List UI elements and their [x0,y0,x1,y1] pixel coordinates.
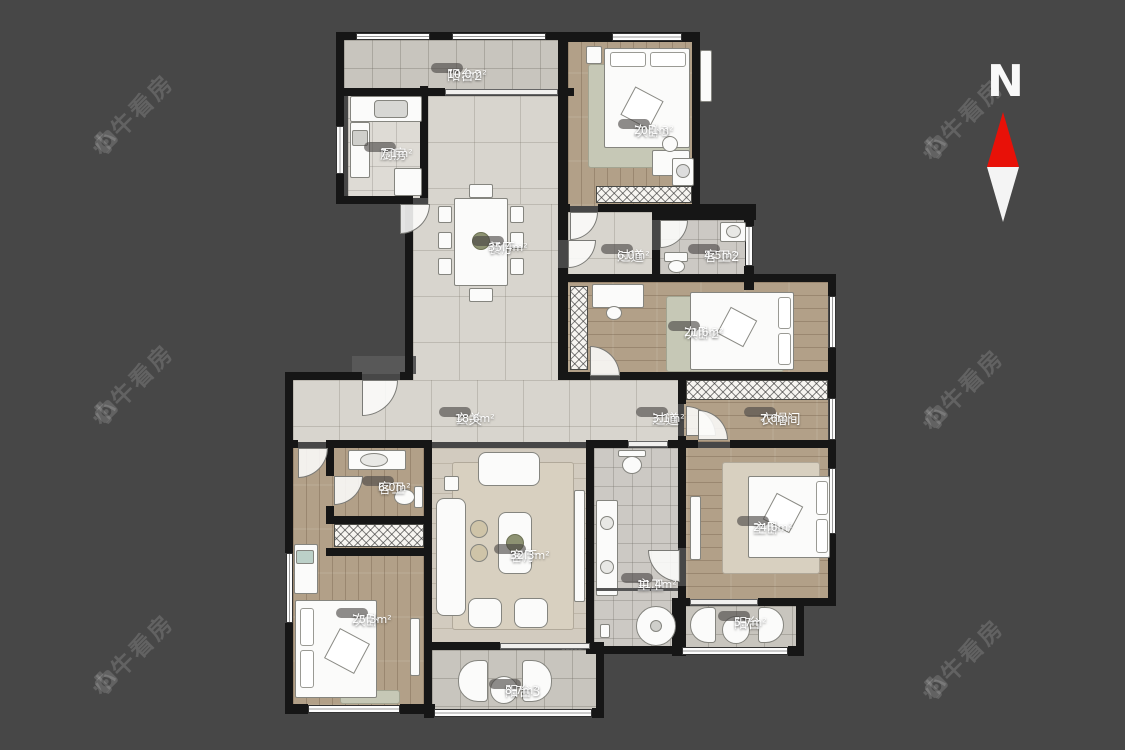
window [434,709,592,717]
compass: N [970,60,1040,230]
room-label-balcony1: 阳台5.7m² [718,611,750,621]
room-area: 6.0m² [378,481,411,495]
chair [469,184,493,198]
armchair [514,598,548,628]
room-area: 20.1m² [634,124,674,138]
sliding-door [500,643,590,649]
window [452,33,546,40]
chair [606,306,622,320]
sliding-door [628,441,668,447]
equipment-platform [700,50,712,102]
wall [285,372,362,380]
wall [562,372,590,380]
room-label-master-bed: 主卧24.6m² [737,516,769,526]
floorplan-canvas: 小牛看房 小牛看房 小牛看房 小牛看房 小牛看房 小牛看房 小牛看房 小牛看房 … [0,0,1125,750]
toilet [668,260,685,273]
toilet-tank [414,486,423,508]
room-area: 24.6m² [753,521,793,535]
wall [424,708,434,718]
wall [424,642,500,650]
pillow [300,608,314,646]
pouf [470,520,488,538]
room-label-bedroom: 次卧25.3m² [336,608,368,618]
wardrobe [334,524,424,547]
room-area: 3.1m² [652,412,685,426]
wall [678,440,686,548]
chair [469,288,493,302]
room-label-bedroom2: 次卧221.6m² [668,321,700,331]
room-label-bedroom3: 次卧320.1m² [618,119,650,129]
window [745,226,753,266]
room-label-kitchen: 厨房7.1m² [364,142,396,152]
wall [788,646,804,656]
pillow [650,52,686,67]
wall [424,440,432,716]
room-label-closet: 衣帽间7.6m² [744,407,776,417]
room-label-master-bath: 主卫11.4m² [621,573,653,583]
toilet [622,456,642,474]
wall [285,704,308,714]
balcony-chair [458,660,488,702]
watermark-text: 小牛看房 [913,609,1011,707]
wall [285,623,293,712]
sofa [436,498,466,616]
room-label-living: 客厅32.3m² [494,544,526,554]
wall [330,440,432,448]
ac-fan [676,164,690,178]
wall [326,516,432,524]
wall [678,376,686,404]
room-area: 32.3m² [510,549,550,563]
wall [586,440,594,654]
wall [652,204,756,220]
room-area: 18.6m² [455,412,495,426]
desk [592,284,644,308]
room-area: 7.6m² [760,412,793,426]
watermark-text: 小牛看房 [83,334,181,432]
wardrobe [596,186,692,203]
pillow [778,333,791,365]
basin [600,560,614,574]
room-area: 35.4m² [488,241,528,255]
watermark-text: 小牛看房 [83,604,181,702]
pillow [816,481,828,515]
wall [672,646,682,656]
nightstand [586,46,602,64]
wall [326,440,334,476]
chair [438,206,452,223]
wall [285,372,293,553]
wall [828,282,836,296]
window [286,553,293,623]
room-label-balcony3: 阳台38.7m² [489,679,521,689]
window [356,33,430,40]
fridge [394,168,422,196]
wall [562,204,570,212]
window [829,296,836,348]
picture-frame [296,550,314,564]
room-area: 10.0m² [447,68,487,82]
basin [360,453,388,467]
pillow [778,297,791,329]
room-label-corridor2: 过道3.1m² [636,407,668,417]
chair [510,206,524,223]
wall [586,646,686,654]
floor-dining-upper [428,96,558,206]
pillow [816,519,828,553]
north-arrow-icon [987,112,1019,167]
room-label-bath2: 客卫24.5m² [688,244,720,254]
pouf [470,544,488,562]
sliding-door [445,89,558,95]
wall [336,196,406,204]
armchair [468,598,502,628]
wall [652,212,660,220]
chair [438,258,452,275]
wall [558,268,568,380]
sliding-door [690,599,758,605]
wall [400,372,413,380]
window [682,647,788,655]
wall [562,274,836,282]
watermark-text: 小牛看房 [913,339,1011,437]
shower-drain [650,620,662,632]
room-label-dining: 餐厅35.4m² [472,236,504,246]
room-area: 6.0m² [617,249,650,263]
tv-cabinet [690,496,701,560]
room-area: 5.7m² [734,616,767,630]
room-label-corridor1: 过道6.0m² [601,244,633,254]
chair [510,258,524,275]
compass-n-label: N [987,56,1024,107]
vanity [596,500,618,596]
wall [285,440,298,448]
room-area: 25.3m² [352,613,392,627]
wardrobe [686,380,828,400]
room-area: 21.6m² [684,326,724,340]
basin [600,516,614,530]
window [612,33,682,41]
tv-console [574,490,585,602]
room-label-foyer: 玄关18.6m² [439,407,471,417]
sofa-loveseat [478,452,540,486]
room-area: 4.5m² [704,249,737,263]
window [336,126,344,174]
wall [730,440,836,448]
sink [374,100,408,118]
window [829,468,836,534]
wall [620,372,836,380]
pillow [300,650,314,688]
floor-lamp [444,476,459,491]
wall [588,440,628,448]
room-area: 11.4m² [637,578,677,592]
wall [336,88,445,96]
tv-cabinet [410,618,420,676]
window [829,398,836,440]
watermark-text: 小牛看房 [83,64,181,162]
wall [336,32,344,204]
wall [596,646,604,718]
wall [678,436,686,444]
basin [726,225,741,238]
room-label-balcony2: 阳台210.0m² [431,63,463,73]
shower-head [600,624,610,638]
room-label-guest-bath: 客卫6.0m² [362,476,394,486]
chair [438,232,452,249]
window [308,705,400,713]
wall [326,548,432,556]
north-arrow-tail-icon [987,167,1019,222]
pillow [610,52,646,67]
room-area: 7.1m² [380,147,413,161]
room-area: 8.7m² [505,684,538,698]
wardrobe [570,286,588,370]
